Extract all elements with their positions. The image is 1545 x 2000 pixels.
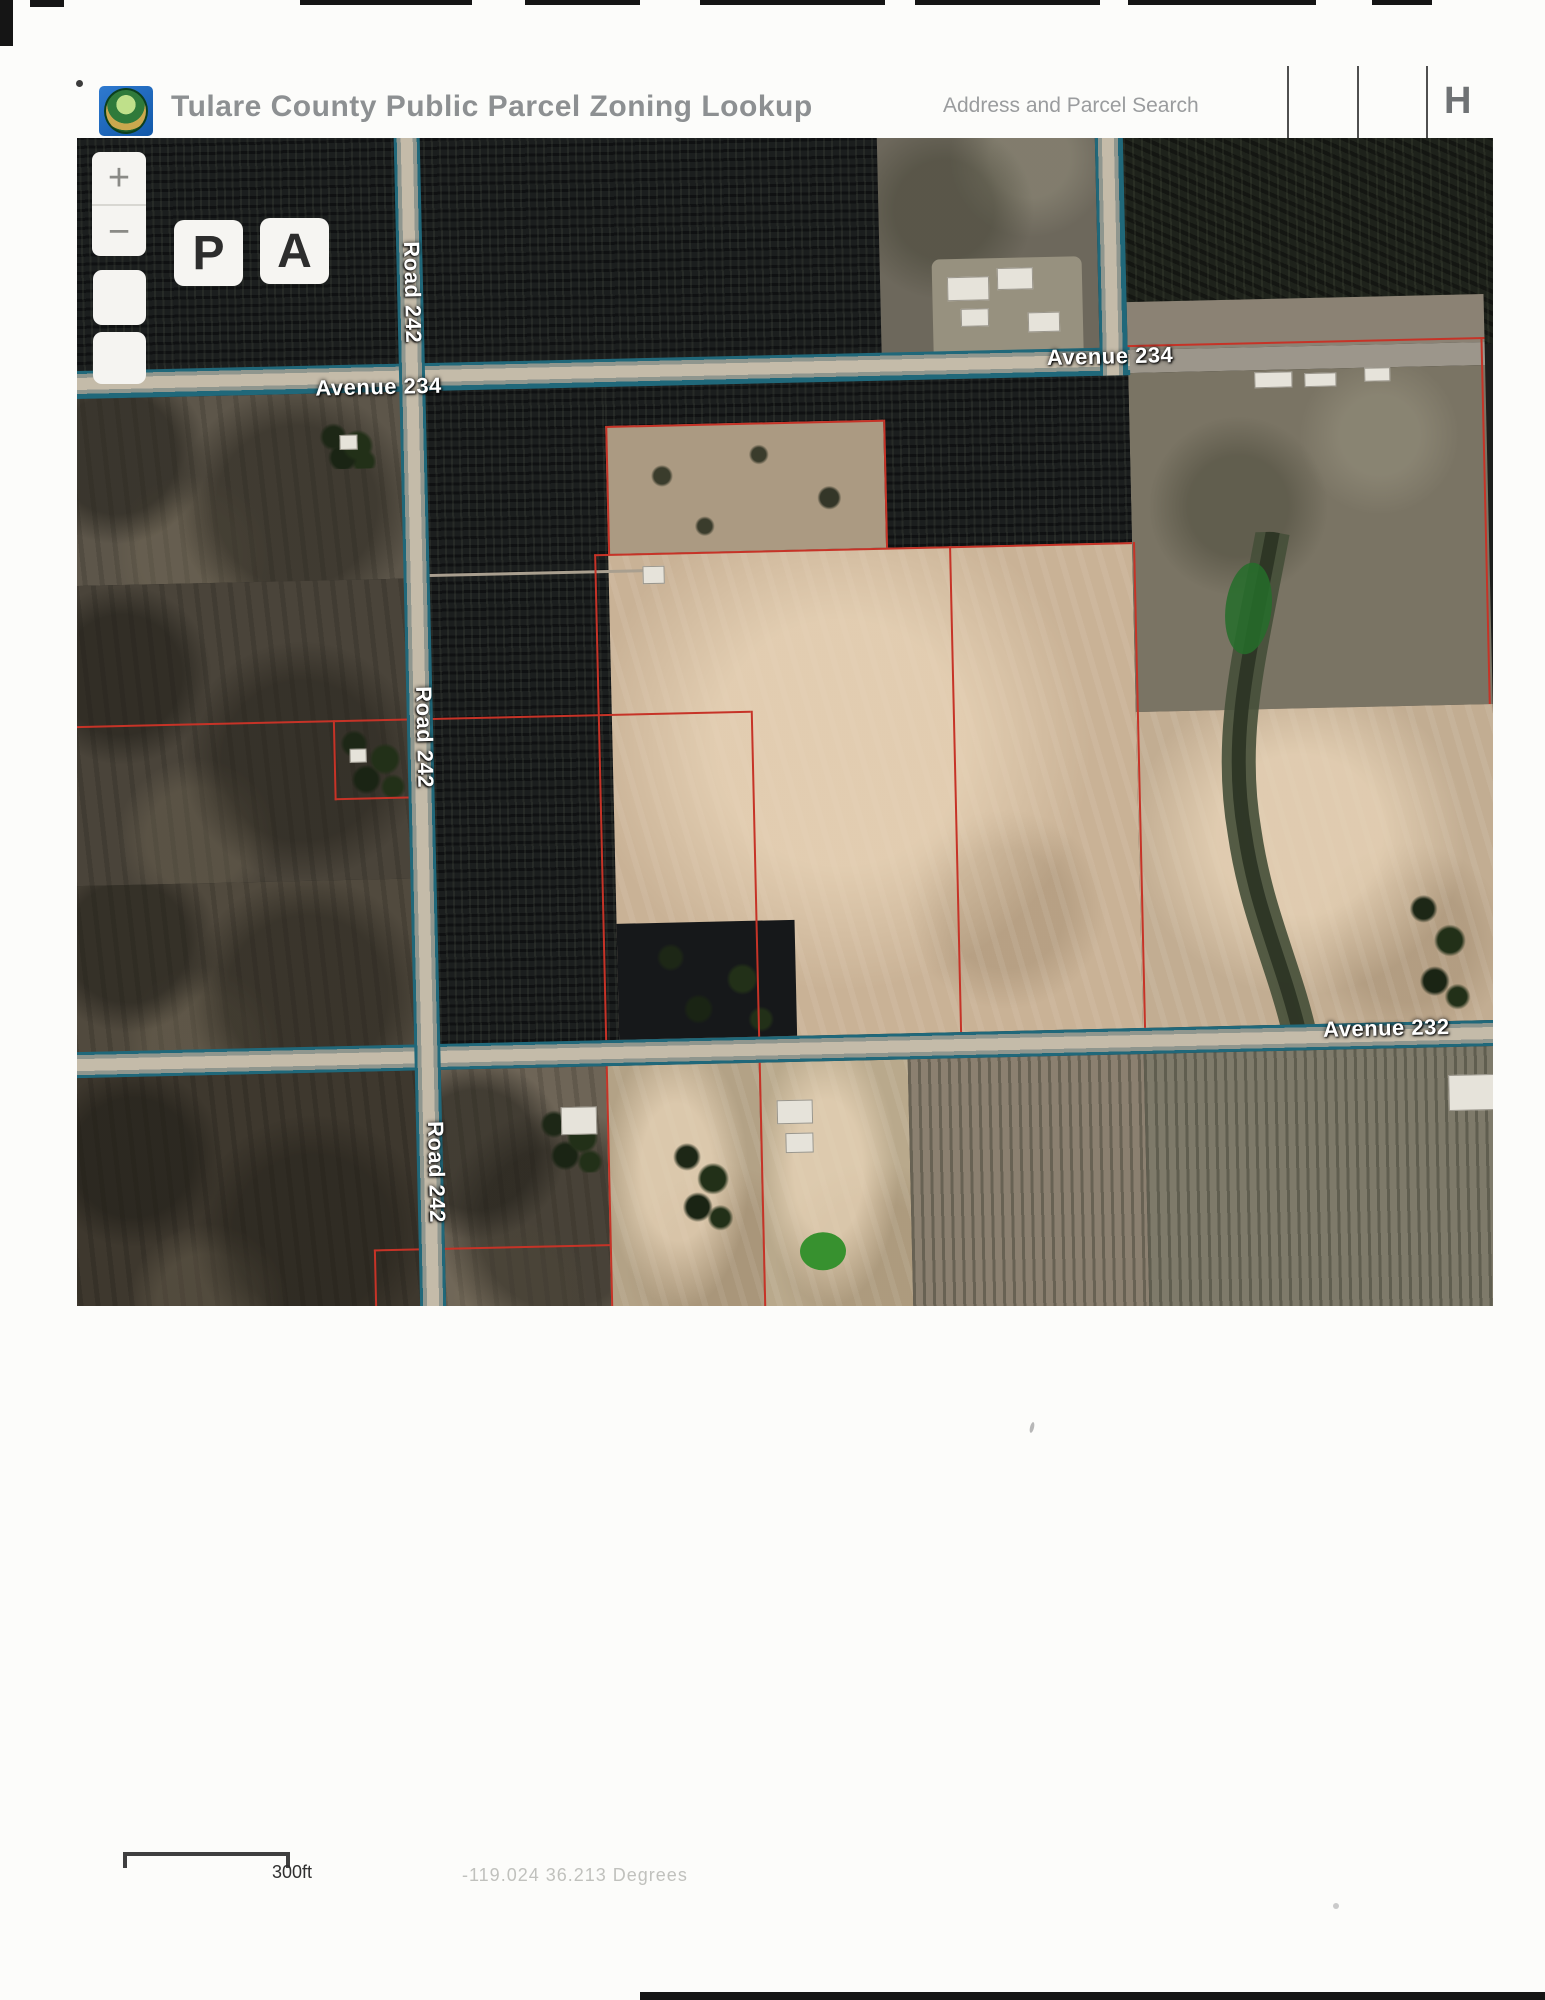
address-tool-button[interactable]: A: [260, 218, 329, 284]
scan-artifact: [76, 80, 83, 87]
aerial-imagery: Road 242 Road 242 Road 242 Avenue 234 Av…: [77, 138, 1493, 1306]
road-label-avenue-234: Avenue 234: [315, 373, 442, 402]
scan-artifact: [525, 0, 640, 5]
building: [561, 1106, 598, 1135]
homestead-trees: [667, 1122, 734, 1235]
road-label-road-242: Road 242: [410, 686, 438, 788]
building: [642, 566, 664, 584]
scan-artifact: [1372, 0, 1432, 5]
road-label-avenue-232: Avenue 232: [1323, 1014, 1450, 1043]
building: [1304, 372, 1336, 387]
homestead-trees: [331, 719, 409, 801]
tree-grove: [617, 920, 798, 1040]
scan-artifact: [1128, 0, 1316, 5]
scan-artifact: [30, 0, 64, 7]
tree-line: [1403, 860, 1471, 1022]
building: [1364, 367, 1390, 382]
panel-divider: [1287, 66, 1289, 140]
scan-artifact: [0, 0, 13, 46]
vineyard: [1144, 1046, 1493, 1306]
home-extent-button[interactable]: [93, 270, 146, 325]
zoom-out-button[interactable]: −: [92, 206, 146, 258]
orchard-block: [882, 375, 1132, 548]
parcel-tool-button[interactable]: P: [174, 220, 243, 286]
building: [947, 276, 990, 301]
scan-artifact: [915, 0, 1100, 5]
field: [77, 1070, 422, 1306]
building: [1028, 312, 1060, 333]
field: [77, 392, 405, 587]
cleared-parcel: [605, 420, 886, 554]
road-vertical: [1094, 138, 1128, 376]
home-button[interactable]: H: [1444, 80, 1471, 123]
scale-label: 300ft: [272, 1862, 312, 1883]
scan-artifact: [300, 0, 472, 5]
tulare-county-seal-icon: [104, 88, 148, 134]
building: [1448, 1074, 1493, 1111]
zoom-in-button[interactable]: +: [92, 152, 146, 206]
building: [961, 308, 989, 327]
road-label-avenue-234: Avenue 234: [1047, 342, 1174, 371]
app-title: Tulare County Public Parcel Zoning Looku…: [171, 90, 813, 124]
building: [339, 435, 357, 450]
road-label-road-242: Road 242: [422, 1121, 450, 1223]
road-label-road-242: Road 242: [398, 241, 426, 343]
coordinates-readout: -119.024 36.213 Degrees: [462, 1865, 688, 1886]
scan-artifact: [640, 1992, 1545, 2000]
farm-parcel: [759, 1059, 914, 1306]
scanned-page: Tulare County Public Parcel Zoning Looku…: [0, 0, 1545, 2000]
creek: [1168, 528, 1439, 1034]
building: [1254, 371, 1292, 388]
map-canvas[interactable]: Road 242 Road 242 Road 242 Avenue 234 Av…: [77, 138, 1493, 1306]
scan-artifact: [1029, 1422, 1036, 1434]
search-panel-label: Address and Parcel Search: [943, 94, 1199, 118]
zoom-control: + −: [92, 152, 146, 256]
locate-button[interactable]: [93, 332, 146, 384]
scan-artifact: [700, 0, 885, 5]
building: [997, 267, 1033, 290]
building: [777, 1099, 814, 1124]
vineyard: [908, 1054, 1150, 1306]
panel-divider: [1357, 66, 1359, 140]
building: [349, 749, 366, 763]
scan-artifact: [1333, 1903, 1339, 1909]
county-seal-logo: [99, 86, 153, 136]
building: [785, 1132, 813, 1153]
panel-divider: [1426, 66, 1428, 140]
scale-bar: [123, 1852, 290, 1868]
